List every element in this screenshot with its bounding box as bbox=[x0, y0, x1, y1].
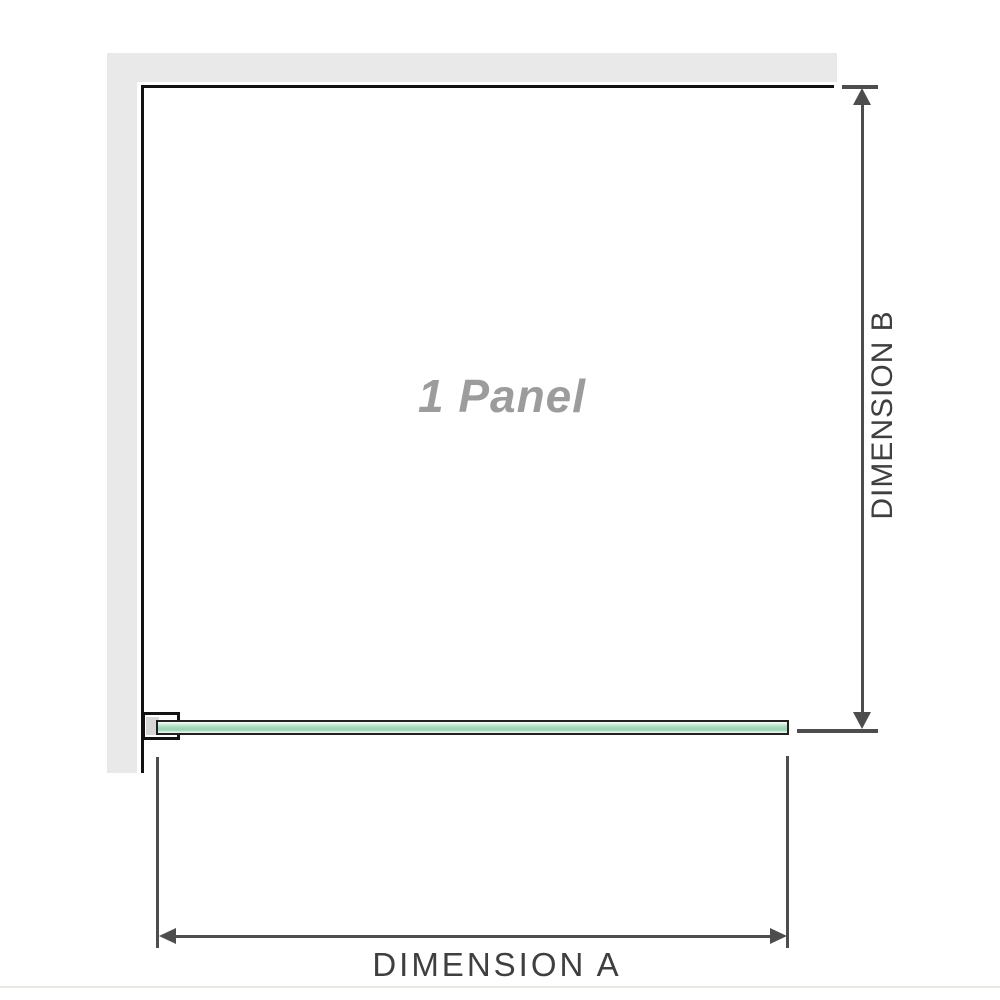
glass-panel bbox=[156, 720, 789, 735]
bottom-divider-line bbox=[0, 986, 1000, 988]
dimension-a-line bbox=[168, 935, 778, 938]
panel-outline-top-line bbox=[142, 85, 834, 88]
dimension-b-bottom-tick bbox=[797, 729, 878, 733]
dimension-a-arrowhead-right-icon bbox=[770, 928, 787, 944]
dimension-b-arrowhead-up-icon bbox=[853, 88, 871, 105]
panel-outline-left-line bbox=[141, 85, 144, 773]
dimension-b-arrowhead-down-icon bbox=[853, 712, 871, 729]
dimension-a-arrowhead-left-icon bbox=[159, 928, 176, 944]
dimension-a-right-extension-line bbox=[786, 756, 789, 948]
dimension-b-label: DIMENSION B bbox=[866, 310, 900, 519]
dimension-b-line bbox=[861, 99, 864, 719]
dimension-a-left-extension-line bbox=[156, 757, 159, 948]
shower-panel-dimension-diagram: 1 Panel DIMENSION B DIMENSION A bbox=[0, 0, 1000, 1000]
wall-top-bar bbox=[107, 53, 837, 82]
wall-left-bar bbox=[107, 53, 137, 773]
panel-count-watermark: 1 Panel bbox=[418, 369, 586, 423]
dimension-a-label: DIMENSION A bbox=[372, 946, 621, 984]
